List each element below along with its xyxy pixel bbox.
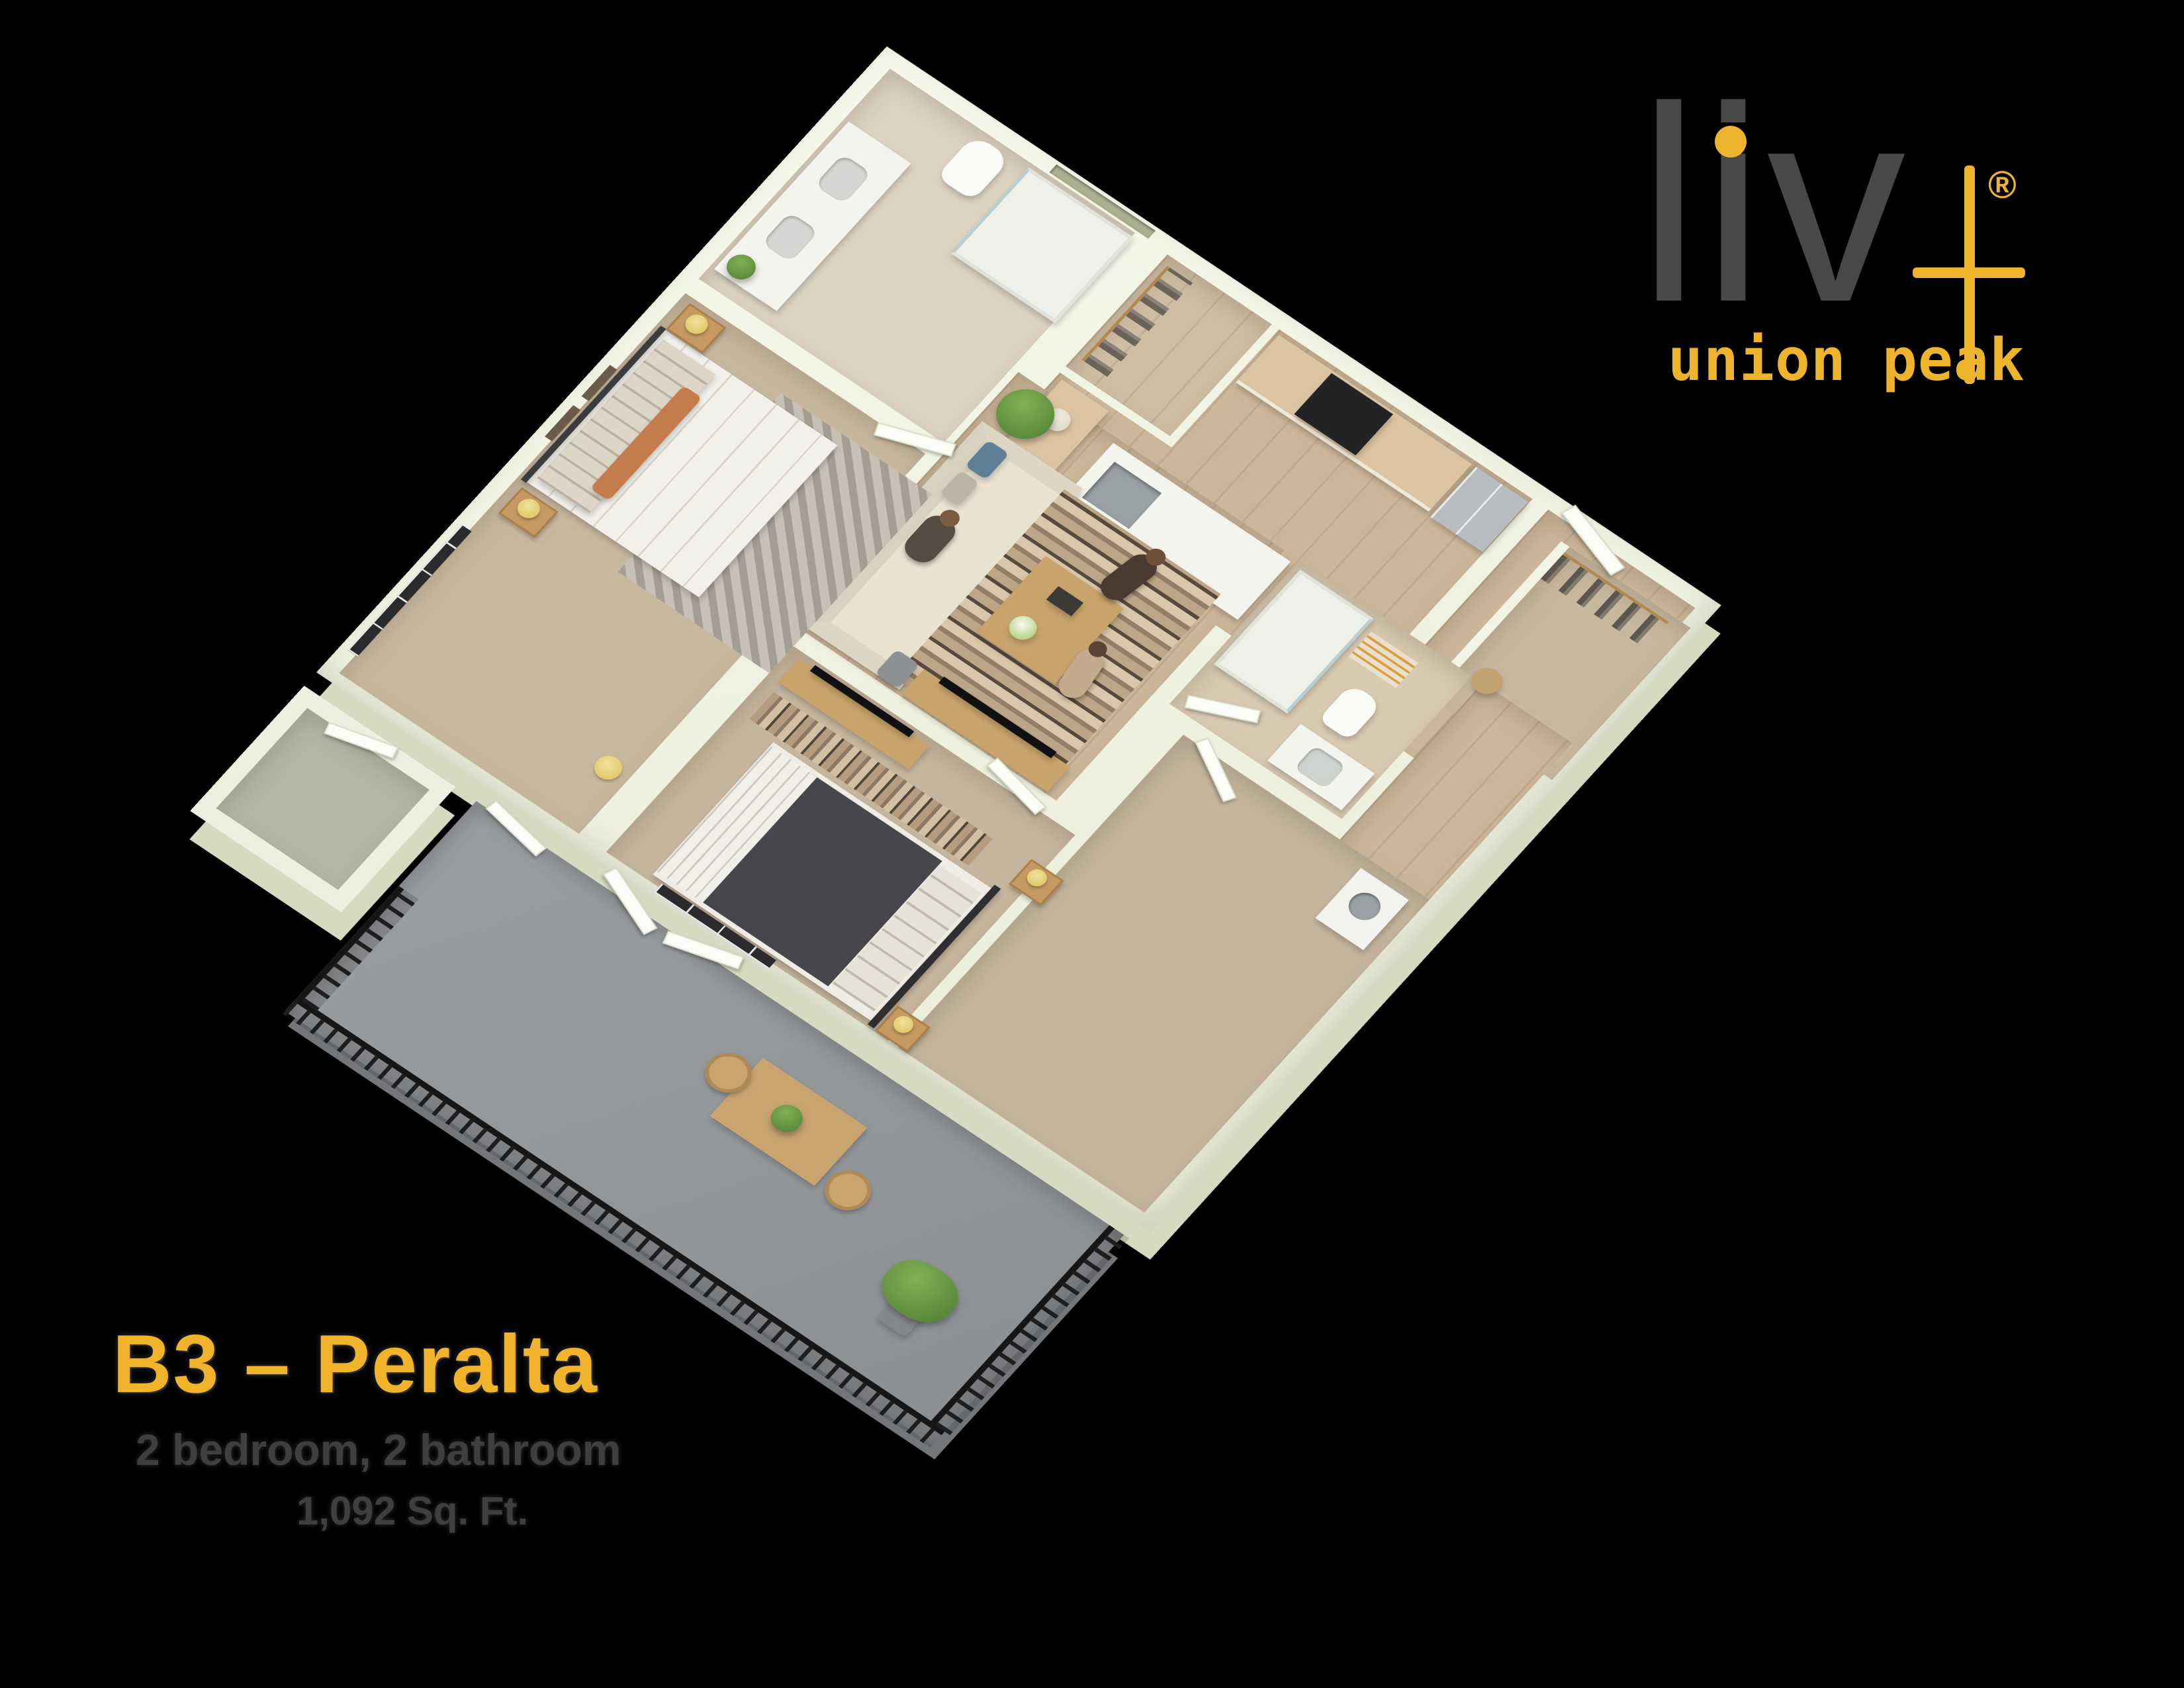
plan-square-footage: 1,092 Sq. Ft.: [296, 1488, 528, 1534]
registered-mark: ®: [1988, 163, 2017, 207]
plus-icon-bar: [1913, 267, 2025, 278]
plan-title: B3 – Peralta: [113, 1317, 598, 1411]
brand-tagline: union peak: [1668, 326, 2025, 394]
plan-bed-bath-details: 2 bedroom, 2 bathroom: [136, 1425, 621, 1475]
floor-plan-3d: [105, 46, 1721, 1464]
logo-i-dot-accent: [1715, 126, 1747, 158]
balcony-railing-east: [930, 1225, 1129, 1435]
brand-logo-text: liv: [1638, 66, 1909, 344]
